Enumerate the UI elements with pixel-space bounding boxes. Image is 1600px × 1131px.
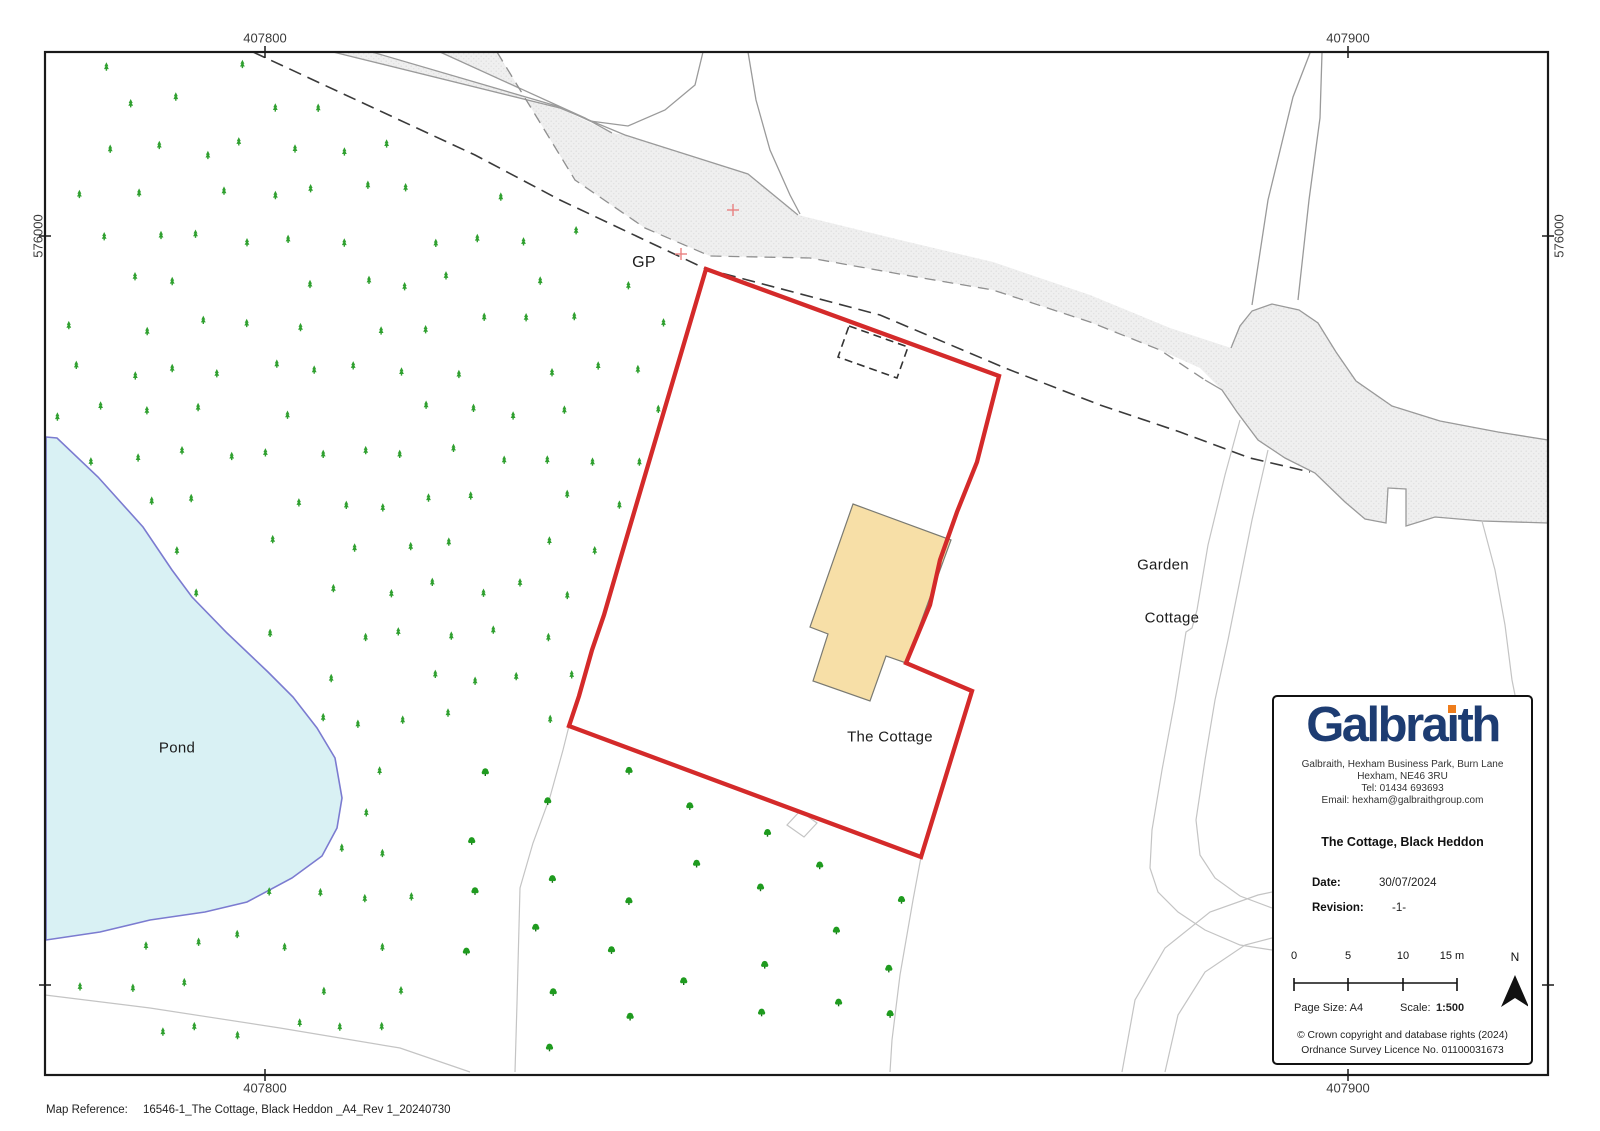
grid-label-top-right: 407900 xyxy=(1326,31,1369,46)
conifer-tree-icon xyxy=(274,359,279,367)
date-label: Date: xyxy=(1312,877,1341,889)
conifer-tree-icon xyxy=(656,405,661,413)
conifer-tree-icon xyxy=(364,808,369,816)
revision-label: Revision: xyxy=(1312,902,1364,914)
map-reference-label: Map Reference: xyxy=(46,1104,128,1116)
conifer-tree-icon xyxy=(173,92,178,100)
conifer-tree-icon xyxy=(424,401,429,409)
conifer-tree-icon xyxy=(379,326,384,334)
date-value: 30/07/2024 xyxy=(1379,877,1437,889)
conifer-tree-icon xyxy=(403,183,408,191)
grid-label-bottom-right: 407900 xyxy=(1326,1081,1369,1096)
conifer-tree-icon xyxy=(196,938,201,946)
conifer-tree-icon xyxy=(545,455,550,463)
conifer-tree-icon xyxy=(569,670,574,678)
conifer-tree-icon xyxy=(351,361,356,369)
decid-tree-icon xyxy=(471,887,478,895)
conifer-tree-icon xyxy=(362,894,367,902)
conifer-tree-icon xyxy=(245,238,250,246)
scalebar-5: 5 xyxy=(1345,950,1351,962)
conifer-tree-icon xyxy=(222,186,227,194)
conifer-tree-icon xyxy=(433,670,438,678)
conifer-tree-icon xyxy=(331,584,336,592)
conifer-tree-icon xyxy=(457,370,462,378)
conifer-tree-icon xyxy=(308,280,313,288)
conifer-tree-icon xyxy=(196,403,201,411)
conifer-tree-icon xyxy=(538,276,543,284)
map-reference-value: 16546-1_The Cottage, Black Heddon _A4_Re… xyxy=(143,1104,451,1116)
conifer-tree-icon xyxy=(626,281,631,289)
site-plan-page: 407800 407900 407800 407900 576000 57600… xyxy=(0,0,1600,1131)
conifer-tree-icon xyxy=(273,191,278,199)
conifer-tree-icon xyxy=(408,542,413,550)
conifer-tree-icon xyxy=(344,501,349,509)
conifer-tree-icon xyxy=(363,446,368,454)
conifer-tree-icon xyxy=(235,930,240,938)
logo-orange-dot xyxy=(1448,705,1456,713)
conifer-tree-icon xyxy=(636,365,641,373)
title-box: Galbraıth Galbraith, Hexham Business Par… xyxy=(1272,695,1533,1065)
conifer-tree-icon xyxy=(206,151,211,159)
conifer-tree-icon xyxy=(409,892,414,900)
conifer-tree-icon xyxy=(318,888,323,896)
conifer-tree-icon xyxy=(426,493,431,501)
conifer-tree-icon xyxy=(321,450,326,458)
conifer-tree-icon xyxy=(161,1027,166,1035)
road-surface xyxy=(333,52,1548,526)
grid-label-left: 576000 xyxy=(31,214,46,257)
conifer-tree-icon xyxy=(136,453,141,461)
decid-tree-icon xyxy=(833,927,840,935)
conifer-tree-icon xyxy=(399,367,404,375)
conifer-tree-icon xyxy=(159,231,164,239)
conifer-tree-icon xyxy=(235,1031,240,1039)
conifer-tree-icon xyxy=(475,234,480,242)
scale-label: Scale: xyxy=(1400,1002,1431,1014)
conifer-tree-icon xyxy=(193,230,198,238)
decid-tree-icon xyxy=(463,948,470,956)
conifer-tree-icon xyxy=(352,543,357,551)
decid-tree-icon xyxy=(693,860,700,868)
conifer-tree-icon xyxy=(363,633,368,641)
conifer-tree-icon xyxy=(380,943,385,951)
conifer-tree-icon xyxy=(524,313,529,321)
conifer-tree-icon xyxy=(389,589,394,597)
conifer-tree-icon xyxy=(547,536,552,544)
conifer-tree-icon xyxy=(546,633,551,641)
conifer-tree-icon xyxy=(574,226,579,234)
conifer-tree-icon xyxy=(596,361,601,369)
road-edge-dashed-black xyxy=(253,52,1310,472)
conifer-tree-icon xyxy=(78,982,83,990)
conifer-tree-icon xyxy=(98,401,103,409)
address-line-2: Hexham, NE46 3RU xyxy=(1274,771,1531,782)
conifer-tree-icon xyxy=(396,627,401,635)
conifer-tree-icon xyxy=(468,491,473,499)
conifer-tree-icon xyxy=(562,405,567,413)
conifer-tree-icon xyxy=(356,720,361,728)
label-the-cottage: The Cottage xyxy=(847,729,933,746)
conifer-tree-icon xyxy=(189,494,194,502)
conifer-tree-icon xyxy=(133,272,138,280)
conifer-tree-icon xyxy=(548,715,553,723)
conifer-tree-icon xyxy=(108,145,113,153)
conifer-tree-icon xyxy=(282,943,287,951)
decid-tree-icon xyxy=(885,965,892,973)
conifer-tree-icon xyxy=(661,318,666,326)
conifer-tree-icon xyxy=(377,766,382,774)
conifer-tree-icon xyxy=(400,715,405,723)
conifer-tree-icon xyxy=(89,457,94,465)
revision-value: -1- xyxy=(1392,902,1406,914)
decid-tree-icon xyxy=(757,884,764,892)
decid-tree-icon xyxy=(686,802,693,810)
conifer-tree-icon xyxy=(430,578,435,586)
conifer-tree-icon xyxy=(308,184,313,192)
conifer-tree-icon xyxy=(131,984,136,992)
conifer-tree-icon xyxy=(572,312,577,320)
decid-tree-icon xyxy=(680,977,687,985)
conifer-tree-icon xyxy=(104,62,109,70)
decid-tree-icon xyxy=(764,829,771,837)
grid-label-top-left: 407800 xyxy=(243,31,286,46)
conifer-tree-icon xyxy=(74,361,79,369)
conifer-tree-icon xyxy=(511,411,516,419)
conifer-tree-icon xyxy=(446,537,451,545)
conifer-tree-icon xyxy=(192,1022,197,1030)
conifer-tree-icon xyxy=(316,104,321,112)
north-label: N xyxy=(1511,950,1520,964)
north-arrow-icon xyxy=(1501,975,1528,1007)
conifer-tree-icon xyxy=(312,365,317,373)
conifer-tree-icon xyxy=(240,60,245,68)
conifer-tree-icon xyxy=(55,412,60,420)
conifer-tree-icon xyxy=(502,456,507,464)
conifer-tree-icon xyxy=(397,450,402,458)
conifer-tree-icon xyxy=(379,1022,384,1030)
conifer-tree-icon xyxy=(297,1018,302,1026)
conifer-tree-icon xyxy=(273,103,278,111)
label-gp: GP xyxy=(632,254,656,272)
conifer-tree-icon xyxy=(244,319,249,327)
conifer-tree-icon xyxy=(481,589,486,597)
conifer-tree-icon xyxy=(293,144,298,152)
conifer-tree-icon xyxy=(321,713,326,721)
scale-value: 1:500 xyxy=(1436,1002,1464,1014)
conifer-tree-icon xyxy=(102,232,107,240)
conifer-tree-icon xyxy=(157,141,162,149)
conifer-tree-icon xyxy=(521,237,526,245)
conifer-tree-icon xyxy=(518,578,523,586)
conifer-tree-icon xyxy=(482,313,487,321)
conifer-tree-icon xyxy=(144,941,149,949)
scalebar-15m: 15 m xyxy=(1440,950,1464,962)
conifer-tree-icon xyxy=(433,239,438,247)
scalebar-10: 10 xyxy=(1397,950,1409,962)
conifer-tree-icon xyxy=(149,496,154,504)
address-line-4: Email: hexham@galbraithgroup.com xyxy=(1274,795,1531,806)
outbuilding-dashed xyxy=(838,326,908,378)
conifer-tree-icon xyxy=(342,238,347,246)
decid-tree-icon xyxy=(544,797,551,805)
label-garden-cottage: Cottage xyxy=(1145,610,1200,627)
conifer-tree-icon xyxy=(329,674,334,682)
conifer-tree-icon xyxy=(380,849,385,857)
decid-tree-icon xyxy=(625,897,632,905)
conifer-tree-icon xyxy=(182,978,187,986)
conifer-tree-icon xyxy=(491,625,496,633)
conifer-tree-icon xyxy=(137,188,142,196)
decid-tree-icon xyxy=(887,1010,894,1018)
conifer-tree-icon xyxy=(286,235,291,243)
decid-tree-icon xyxy=(550,988,557,996)
conifer-tree-icon xyxy=(592,546,597,554)
decid-tree-icon xyxy=(835,999,842,1007)
conifer-tree-icon xyxy=(399,986,404,994)
scalebar-0: 0 xyxy=(1291,950,1297,962)
conifer-tree-icon xyxy=(590,457,595,465)
copyright-line-2: Ordnance Survey Licence No. 01100031673 xyxy=(1274,1045,1531,1056)
conifer-tree-icon xyxy=(201,316,206,324)
galbraith-logo: Galbraıth xyxy=(1274,699,1531,751)
conifer-tree-icon xyxy=(263,448,268,456)
conifer-tree-icon xyxy=(145,327,150,335)
conifer-tree-icon xyxy=(342,147,347,155)
conifer-tree-icon xyxy=(473,677,478,685)
road-edge-dashed-grey xyxy=(497,52,1205,380)
conifer-tree-icon xyxy=(339,843,344,851)
label-garden: Garden xyxy=(1137,557,1189,574)
decid-tree-icon xyxy=(468,837,475,845)
conifer-tree-icon xyxy=(285,411,290,419)
conifer-tree-icon xyxy=(498,192,503,200)
decid-tree-icon xyxy=(549,875,556,883)
conifer-tree-icon xyxy=(298,323,303,331)
conifer-tree-icon xyxy=(180,446,185,454)
address-line-3: Tel: 01434 693693 xyxy=(1274,783,1531,794)
copyright-line-1: © Crown copyright and database rights (2… xyxy=(1274,1030,1531,1041)
grid-label-right: 576000 xyxy=(1552,214,1567,257)
conifer-tree-icon xyxy=(637,457,642,465)
decid-tree-icon xyxy=(816,862,823,870)
page-size: Page Size: A4 xyxy=(1294,1002,1363,1014)
label-pond: Pond xyxy=(159,740,195,757)
conifer-tree-icon xyxy=(367,276,372,284)
conifer-tree-icon xyxy=(66,321,71,329)
conifer-tree-icon xyxy=(322,987,327,995)
plan-title: The Cottage, Black Heddon xyxy=(1274,835,1531,849)
conifer-tree-icon xyxy=(451,444,456,452)
conifer-tree-icon xyxy=(449,631,454,639)
conifer-tree-icon xyxy=(128,99,133,107)
conifer-tree-icon xyxy=(514,672,519,680)
conifer-tree-icon xyxy=(270,535,275,543)
conifer-tree-icon xyxy=(337,1022,342,1030)
conifer-tree-icon xyxy=(170,277,175,285)
conifer-tree-icon xyxy=(444,271,449,279)
conifer-tree-icon xyxy=(617,500,622,508)
conifer-tree-icon xyxy=(77,190,82,198)
conifer-tree-icon xyxy=(471,404,476,412)
conifer-tree-icon xyxy=(297,498,302,506)
decid-tree-icon xyxy=(625,767,632,775)
conifer-tree-icon xyxy=(229,452,234,460)
decid-tree-icon xyxy=(532,924,539,932)
conifer-tree-icon xyxy=(214,369,219,377)
conifer-tree-icon xyxy=(402,282,407,290)
conifer-tree-icon xyxy=(446,708,451,716)
decid-tree-icon xyxy=(608,946,615,954)
decid-tree-icon xyxy=(546,1044,553,1052)
conifer-tree-icon xyxy=(366,181,371,189)
conifer-tree-icon xyxy=(550,368,555,376)
conifer-tree-icon xyxy=(170,364,175,372)
decid-tree-icon xyxy=(758,1009,765,1017)
conifer-tree-icon xyxy=(384,139,389,147)
decid-tree-icon xyxy=(761,961,768,969)
grid-label-bottom-left: 407800 xyxy=(243,1081,286,1096)
conifer-tree-icon xyxy=(133,371,138,379)
conifer-tree-icon xyxy=(175,546,180,554)
decid-tree-icon xyxy=(627,1013,634,1021)
conifer-tree-icon xyxy=(236,137,241,145)
address-line-1: Galbraith, Hexham Business Park, Burn La… xyxy=(1274,759,1531,770)
conifer-tree-icon xyxy=(380,503,385,511)
decid-tree-icon xyxy=(482,768,489,776)
pond-area xyxy=(46,437,342,940)
decid-tree-icon xyxy=(898,896,905,904)
conifer-tree-icon xyxy=(423,325,428,333)
conifer-tree-icon xyxy=(268,629,273,637)
conifer-tree-icon xyxy=(565,490,570,498)
conifer-tree-icon xyxy=(145,406,150,414)
conifer-tree-icon xyxy=(565,591,570,599)
conifer-tree-icon xyxy=(194,588,199,596)
